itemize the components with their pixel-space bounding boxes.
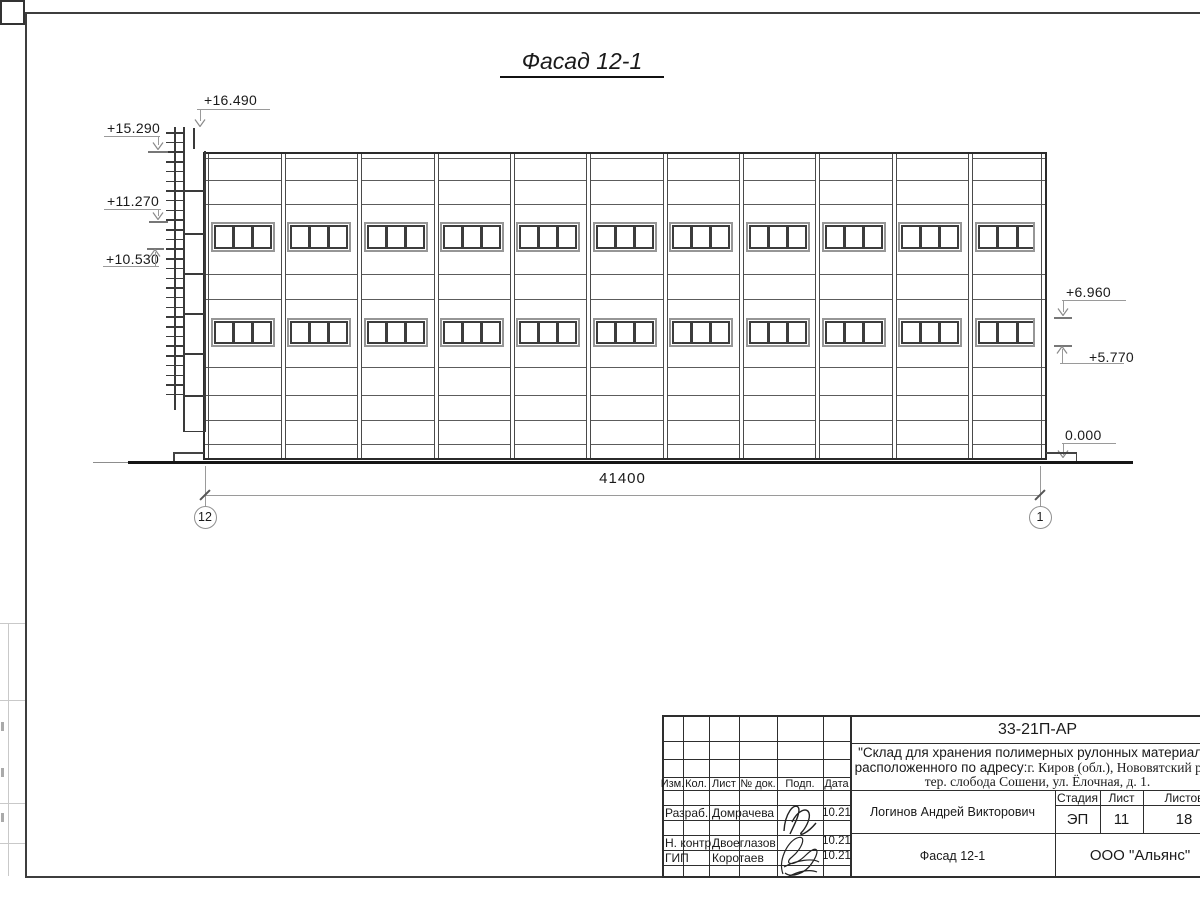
facade-edge-line — [208, 154, 209, 458]
title-block-line — [662, 741, 850, 742]
window-frame — [672, 321, 730, 344]
ladder-rung — [166, 142, 185, 144]
view-title: Фасад 12-1 — [500, 46, 664, 78]
ladder-rung — [166, 384, 185, 386]
name-domracheva: Домрачева — [712, 805, 776, 820]
window — [287, 222, 351, 252]
title-block-line — [662, 759, 850, 760]
window-pane — [254, 323, 270, 342]
window-frame — [901, 225, 959, 249]
window-pane — [922, 323, 941, 342]
window-pane — [903, 323, 922, 342]
window-pane — [445, 323, 464, 342]
facade-column — [510, 154, 515, 458]
window-pane — [330, 227, 346, 247]
margin-line — [8, 623, 9, 876]
window-frame — [519, 225, 577, 249]
margin-line — [0, 623, 25, 624]
facade-joint — [205, 420, 1045, 421]
window — [669, 222, 733, 252]
window — [211, 222, 275, 252]
ladder-rung — [166, 307, 185, 309]
window-frame — [901, 321, 959, 344]
window — [746, 222, 810, 252]
ladder-rung — [166, 287, 185, 289]
date-nkontr: 10.21 — [823, 834, 850, 848]
window — [898, 318, 962, 347]
sheet-value: 11 — [1100, 805, 1143, 833]
window-pane — [751, 227, 770, 247]
margin-line — [0, 843, 25, 844]
window-frame — [367, 225, 425, 249]
plinth-step-left — [173, 452, 204, 454]
elevation-underline — [1062, 300, 1126, 301]
facade-column — [968, 154, 973, 458]
facade-joint — [205, 444, 1045, 445]
axis-bubble-12: 12 — [194, 506, 217, 529]
approver-name: Логинов Андрей Викторович — [850, 790, 1055, 833]
window — [440, 318, 504, 347]
window-pane — [674, 323, 693, 342]
window-pane — [693, 323, 712, 342]
window-pane — [922, 227, 941, 247]
window-pane — [903, 227, 922, 247]
ladder-rung — [166, 355, 185, 357]
project-name-line1: "Склад для хранения полимерных рулонных … — [850, 745, 1200, 760]
ladder-rung — [166, 132, 185, 134]
elevation-arrow-icon — [194, 119, 206, 127]
ladder-rung — [166, 200, 185, 202]
window-pane — [407, 323, 423, 342]
window-pane — [464, 323, 483, 342]
margin-line — [0, 700, 25, 701]
ladder-rung — [166, 161, 185, 163]
window-pane — [846, 323, 865, 342]
col-header-ndok: № док. — [739, 777, 777, 790]
ladder-wall-rail — [204, 151, 206, 432]
window-pane — [617, 227, 636, 247]
window-frame — [672, 225, 730, 249]
elevation-label: 0.000 — [1065, 427, 1102, 443]
window-pane — [1019, 323, 1035, 342]
plinth-step-right — [1076, 452, 1078, 461]
date-razrab: 10.21 — [823, 805, 850, 820]
window-frame — [519, 321, 577, 344]
title-block-line — [850, 743, 1200, 744]
col-header-list: Лист — [709, 777, 739, 790]
elevation-tick — [148, 151, 168, 153]
ladder-rung — [166, 297, 185, 299]
window — [287, 318, 351, 347]
col-header-izm: Изм. — [662, 777, 683, 790]
window-pane — [827, 227, 846, 247]
window-frame — [214, 225, 272, 249]
title-block-line — [662, 715, 664, 878]
window-pane — [865, 323, 881, 342]
facade-joint — [205, 204, 1045, 205]
window-pane — [598, 227, 617, 247]
window-pane — [693, 227, 712, 247]
window — [822, 222, 886, 252]
ladder-rung — [166, 171, 185, 173]
col-header-podp: Подп. — [777, 777, 823, 790]
window-pane — [865, 227, 881, 247]
ladder-rung — [166, 210, 185, 212]
window-pane — [770, 227, 789, 247]
ladder-bracket — [183, 273, 205, 275]
ladder-rung — [166, 258, 185, 260]
elevation-arrow-icon — [1057, 308, 1069, 316]
company-name: ООО "Альянс" — [1055, 833, 1200, 878]
ladder-bracket — [183, 395, 205, 397]
window-pane — [846, 227, 865, 247]
window-pane — [941, 227, 957, 247]
window — [516, 318, 580, 347]
project-name-line3: тер. слобода Сошени, ул. Ёлочная, д. 1. — [850, 775, 1200, 789]
window-pane — [388, 227, 407, 247]
ladder-rung — [166, 365, 185, 367]
window — [593, 222, 657, 252]
window — [669, 318, 733, 347]
axis-bubble-1: 1 — [1029, 506, 1052, 529]
elevation-underline — [1060, 363, 1124, 364]
margin-mark — [1, 768, 4, 777]
elevation-underline — [1062, 443, 1116, 444]
ladder-rung — [166, 248, 185, 250]
ladder-bracket — [183, 313, 205, 315]
ladder-rung — [166, 219, 185, 221]
window-frame — [978, 225, 1035, 249]
window-frame — [978, 321, 1035, 344]
elevation-label: +15.290 — [107, 120, 160, 136]
ladder-top-box — [0, 0, 25, 25]
role-nkontr: Н. контр. — [665, 835, 713, 850]
window-pane — [540, 227, 559, 247]
facade-edge-line — [1041, 154, 1042, 458]
ladder-rung — [166, 229, 185, 231]
ladder-rung — [166, 278, 185, 280]
window-frame — [214, 321, 272, 344]
facade-joint — [205, 395, 1045, 396]
window-pane — [235, 323, 254, 342]
facade-column — [663, 154, 668, 458]
window-pane — [330, 323, 346, 342]
elevation-arrow-icon — [152, 142, 164, 150]
elevation-underline — [104, 209, 161, 210]
window-pane — [598, 323, 617, 342]
window-pane — [636, 323, 652, 342]
frame-top — [25, 12, 1200, 14]
dimension-value: 41400 — [540, 470, 705, 487]
window-frame — [596, 321, 654, 344]
window-pane — [751, 323, 770, 342]
elevation-underline — [104, 136, 160, 137]
signature-nkontr-gip — [776, 833, 824, 879]
window — [822, 318, 886, 347]
facade-column — [815, 154, 820, 458]
window-pane — [712, 323, 728, 342]
ladder-rung — [166, 326, 185, 328]
elevation-label: +11.270 — [107, 193, 159, 209]
ladder-rung — [166, 316, 185, 318]
facade-column — [586, 154, 591, 458]
window-frame — [290, 225, 348, 249]
ladder-bracket — [183, 353, 205, 355]
window-frame — [367, 321, 425, 344]
window-pane — [559, 227, 575, 247]
window-frame — [443, 225, 501, 249]
window — [440, 222, 504, 252]
window-pane — [559, 323, 575, 342]
ladder-rung — [166, 151, 185, 153]
window-pane — [1019, 227, 1035, 247]
facade-joint — [205, 180, 1045, 181]
elevation-arrow-icon — [1056, 346, 1068, 354]
ladder-bracket — [183, 233, 205, 235]
elevation-underline — [197, 109, 270, 110]
margin-line — [0, 803, 25, 804]
facade-column — [739, 154, 744, 458]
facade-column — [281, 154, 286, 458]
facade-joint — [205, 274, 1045, 275]
window-pane — [712, 227, 728, 247]
window-pane — [216, 323, 235, 342]
window-frame — [825, 225, 883, 249]
window-pane — [789, 323, 805, 342]
building-facade — [203, 152, 1047, 460]
plinth-step-left — [173, 452, 175, 461]
frame-left — [25, 12, 27, 878]
window-pane — [521, 227, 540, 247]
elevation-underline — [103, 266, 159, 267]
window-frame — [749, 225, 807, 249]
sheet-label: Лист — [1100, 790, 1143, 805]
window — [593, 318, 657, 347]
facade-column — [357, 154, 362, 458]
window-pane — [521, 323, 540, 342]
project-name-line2: расположенного по адресу: г. Киров (обл.… — [850, 760, 1200, 775]
ladder-bracket — [183, 190, 205, 192]
facade-joint — [205, 299, 1045, 300]
margin-mark — [1, 813, 4, 822]
window-pane — [483, 323, 499, 342]
window-pane — [311, 227, 330, 247]
window-pane — [770, 323, 789, 342]
ladder-bottom-bracket — [183, 431, 206, 433]
role-razrab: Разраб. — [665, 805, 710, 820]
window-frame — [749, 321, 807, 344]
ladder-rung — [166, 336, 185, 338]
window-frame — [596, 225, 654, 249]
window-pane — [464, 227, 483, 247]
doc-number: 33-21П-АР — [850, 717, 1200, 742]
window-pane — [540, 323, 559, 342]
dimension-line — [205, 495, 1040, 496]
facade-column — [892, 154, 897, 458]
window-pane — [980, 323, 1000, 342]
drawing-name: Фасад 12-1 — [850, 833, 1055, 878]
stage-value: ЭП — [1055, 805, 1100, 833]
facade-column — [434, 154, 439, 458]
window-pane — [999, 227, 1019, 247]
window-frame — [443, 321, 501, 344]
window-pane — [999, 323, 1019, 342]
signature-domracheva — [779, 801, 821, 837]
window — [364, 222, 428, 252]
title-block: 33-21П-АР "Склад для хранения полимерных… — [662, 715, 1200, 878]
extension-line-right — [1040, 466, 1041, 506]
window-pane — [483, 227, 499, 247]
plinth-step-right — [1046, 452, 1077, 454]
elevation-tick — [1054, 317, 1072, 319]
ladder-rung — [166, 239, 185, 241]
window-pane — [674, 227, 693, 247]
elevation-label: +16.490 — [204, 92, 257, 108]
window-pane — [617, 323, 636, 342]
window-pane — [369, 323, 388, 342]
window-pane — [445, 227, 464, 247]
elevation-arrow-icon — [149, 249, 161, 257]
window-pane — [369, 227, 388, 247]
window-pane — [216, 227, 235, 247]
ground-line-extension — [93, 462, 128, 463]
drawing-sheet: Фасад 12-1 +16.490+15.290+11.270+10.530+… — [0, 0, 1200, 900]
elevation-tick — [149, 221, 168, 223]
window — [364, 318, 428, 347]
window — [746, 318, 810, 347]
window-frame — [290, 321, 348, 344]
col-header-kol: Кол. — [683, 777, 709, 790]
ladder-top-box-divider — [193, 128, 195, 149]
window-pane — [407, 227, 423, 247]
sheets-label: Листов — [1143, 790, 1200, 805]
ladder-rung — [166, 181, 185, 183]
window — [975, 222, 1035, 252]
window-pane — [254, 227, 270, 247]
window-pane — [636, 227, 652, 247]
project-name-line2-part1: расположенного по адресу: — [855, 760, 1028, 775]
facade-joint — [205, 367, 1045, 368]
window-pane — [292, 323, 311, 342]
ladder-rung — [166, 268, 185, 270]
window — [211, 318, 275, 347]
window-pane — [827, 323, 846, 342]
window — [975, 318, 1035, 347]
ladder-bottom-bracket — [183, 410, 185, 432]
role-gip: ГИП — [665, 850, 710, 865]
extension-line-left — [205, 466, 206, 506]
stage-label: Стадия — [1055, 790, 1100, 805]
name-dvoeglazov: Двоеглазов — [712, 835, 778, 850]
window-pane — [292, 227, 311, 247]
window-pane — [941, 323, 957, 342]
window-pane — [388, 323, 407, 342]
title-block-line — [662, 820, 850, 821]
window-pane — [789, 227, 805, 247]
sheets-value: 18 — [1143, 805, 1200, 833]
window — [898, 222, 962, 252]
ladder-rung — [166, 345, 185, 347]
margin-mark — [1, 722, 4, 731]
window-pane — [980, 227, 1000, 247]
elevation-label: +6.960 — [1066, 284, 1111, 300]
window — [516, 222, 580, 252]
date-gip: 10.21 — [823, 849, 850, 863]
ladder-rung — [166, 375, 185, 377]
ground-line — [128, 461, 1133, 464]
window-pane — [235, 227, 254, 247]
col-header-data: Дата — [823, 777, 850, 790]
window-frame — [825, 321, 883, 344]
elevation-arrow-icon — [152, 212, 164, 220]
facade-joint — [205, 158, 1045, 159]
name-korotaev: Коротаев — [712, 850, 776, 865]
window-pane — [311, 323, 330, 342]
